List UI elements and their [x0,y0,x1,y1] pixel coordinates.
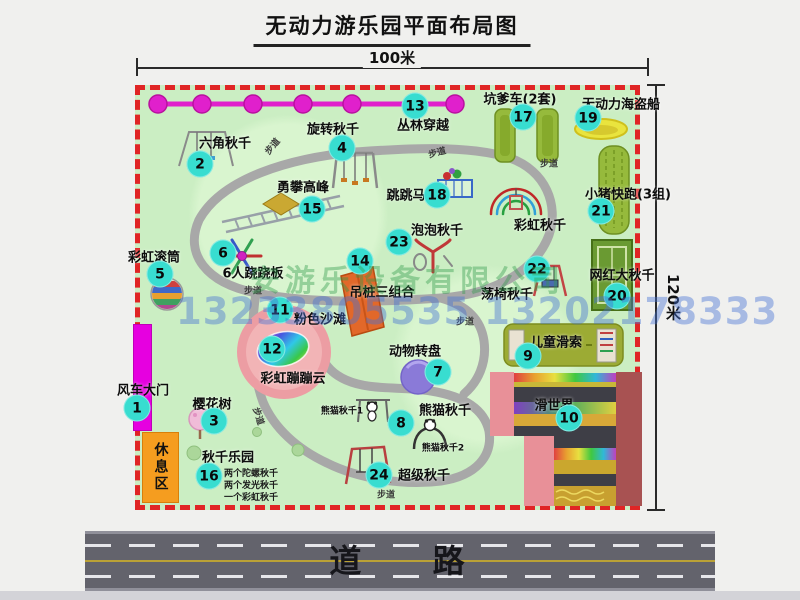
park-map-page: 无动力游乐园平面布局图 100米 120米 [0,0,800,600]
width-dimension-tick-right [647,58,649,76]
height-dimension-tick-bottom [647,509,665,511]
width-dimension-tick-left [136,58,138,76]
width-dimension-label: 100米 [363,47,421,68]
windmill-gate [133,324,152,431]
height-dimension-tick-top [647,84,665,86]
road-label: 道 路 [329,536,470,582]
road: 道 路 [85,531,715,591]
rest-area-label: 休息区 [151,442,171,493]
watermark-phone: 13233805535 13202178333 [176,290,778,333]
rest-area: 休息区 [142,432,179,503]
page-bottom-strip [0,591,800,600]
page-title: 无动力游乐园平面布局图 [254,10,531,47]
